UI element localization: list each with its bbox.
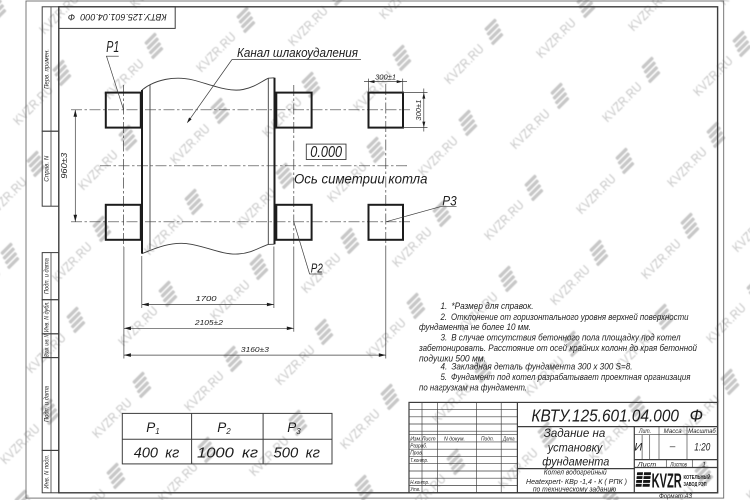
svg-text:5. Фундамент под котел разраба: 5. Фундамент под котел разрабатывает про… — [441, 372, 691, 382]
svg-text:Т.контр.: Т.контр. — [410, 458, 428, 464]
svg-text:–: – — [669, 442, 676, 453]
svg-text:Подп. и дата: Подп. и дата — [44, 385, 50, 422]
svg-text:Масса: Масса — [664, 429, 683, 435]
svg-text:Справ. N: Справ. N — [44, 155, 50, 182]
svg-text:Лист: Лист — [637, 461, 657, 468]
svg-text:Дата: Дата — [502, 436, 514, 442]
svg-text:забетонировать. Расстояние от: забетонировать. Расстояние от осей крайн… — [418, 343, 697, 353]
svg-text:2105±2: 2105±2 — [194, 318, 224, 327]
svg-text:фундамента не более 10 мм.: фундамента не более 10 мм. — [419, 322, 531, 332]
svg-text:1700: 1700 — [196, 294, 218, 303]
svg-text:500 кг: 500 кг — [274, 445, 320, 461]
svg-text:1. *Размер для справок.: 1. *Размер для справок. — [441, 301, 534, 311]
svg-text:N докум.: N докум. — [444, 436, 465, 442]
svg-text:Ф: Ф — [68, 12, 75, 22]
svg-text:Утв.: Утв. — [409, 487, 420, 493]
svg-text:300±1: 300±1 — [414, 100, 423, 121]
svg-text:Лит.: Лит. — [638, 429, 651, 435]
svg-text:4. Закладная деталь фундамента: 4. Закладная деталь фундамента 300 x 300… — [441, 362, 633, 372]
svg-text:Разраб.: Разраб. — [410, 444, 427, 450]
svg-text:400 кг: 400 кг — [134, 445, 180, 461]
svg-text:Инв. N дубл.: Инв. N дубл. — [44, 301, 50, 332]
svg-text:960±3: 960±3 — [59, 153, 69, 179]
svg-text:1000 кг: 1000 кг — [197, 445, 258, 461]
svg-text:Р2: Р2 — [311, 261, 323, 275]
svg-text:Подп.: Подп. — [481, 436, 494, 442]
svg-text:3. В случае отсутствия бетонно: 3. В случае отсутствия бетонного пола пл… — [441, 333, 681, 343]
svg-text:Перв. примен.: Перв. примен. — [44, 49, 50, 89]
svg-text:Подп. и дата: Подп. и дата — [44, 258, 50, 295]
svg-text:КВТУ.125.601.04.000: КВТУ.125.601.04.000 — [531, 405, 679, 425]
svg-text:КВТУ.125.601.04.000: КВТУ.125.601.04.000 — [80, 12, 166, 22]
svg-text:2. Отклонение от горизонтально: 2. Отклонение от горизонтального уровня … — [440, 312, 689, 322]
svg-text:Канал шлакоудаления: Канал шлакоудаления — [237, 45, 358, 60]
svg-text:Ось симетрии котла: Ось симетрии котла — [294, 171, 428, 187]
svg-text:Р3: Р3 — [442, 192, 457, 208]
svg-text:1: 1 — [702, 461, 706, 468]
svg-text:Котел водогрейный: Котел водогрейный — [544, 467, 607, 476]
svg-text:Взам. инв. N: Взам. инв. N — [44, 334, 50, 356]
svg-text:0.000: 0.000 — [310, 144, 342, 161]
svg-text:KVZR: KVZR — [652, 470, 683, 492]
svg-text:по нагрузкам на фундамент.: по нагрузкам на фундамент. — [419, 383, 527, 393]
svg-text:300±1: 300±1 — [375, 72, 396, 81]
svg-text:Изм.Лист: Изм.Лист — [410, 436, 436, 442]
svg-text:Пров.: Пров. — [410, 451, 423, 457]
svg-text:Листов: Листов — [670, 461, 688, 468]
svg-text:Инв. N подл.: Инв. N подл. — [44, 455, 50, 489]
svg-text:КОТЕЛЬНЫЙ: КОТЕЛЬНЫЙ — [684, 473, 711, 481]
svg-text:ЗАВОД РЭП: ЗАВОД РЭП — [684, 482, 707, 488]
svg-text:Р1: Р1 — [106, 39, 119, 56]
svg-text:3160±3: 3160±3 — [241, 345, 270, 354]
svg-text:Формат А3: Формат А3 — [659, 493, 692, 500]
svg-text:Н.контр.: Н.контр. — [410, 480, 429, 486]
svg-text:Ф: Ф — [690, 405, 704, 425]
svg-text:по техническому заданию: по техническому заданию — [533, 485, 617, 494]
svg-text:Масштаб: Масштаб — [688, 429, 716, 435]
svg-text:Задание на: Задание на — [544, 428, 606, 440]
svg-text:установку: установку — [547, 442, 604, 454]
svg-text:И: И — [634, 442, 642, 454]
svg-text:1:20: 1:20 — [694, 442, 711, 454]
